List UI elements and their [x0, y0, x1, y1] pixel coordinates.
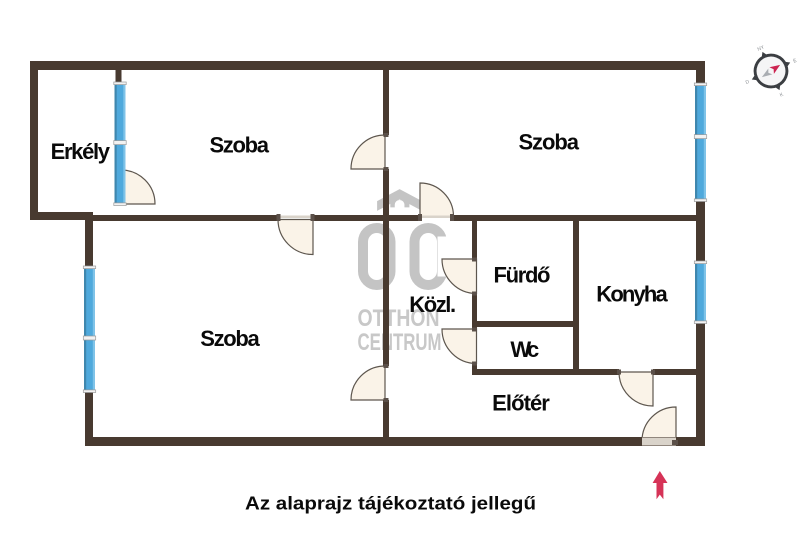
svg-text:Előtér: Előtér	[492, 391, 550, 416]
svg-text:Erkély: Erkély	[51, 139, 111, 164]
svg-text:Wc: Wc	[510, 337, 539, 362]
svg-text:Az alaprajz tájékoztató jelleg: Az alaprajz tájékoztató jellegű	[245, 492, 536, 513]
svg-text:Szoba: Szoba	[518, 130, 579, 155]
svg-text:Közl.: Közl.	[409, 292, 456, 317]
svg-text:Konyha: Konyha	[596, 282, 668, 307]
svg-text:CENTRUM: CENTRUM	[358, 329, 442, 356]
svg-text:Szoba: Szoba	[200, 326, 260, 351]
svg-text:Fürdő: Fürdő	[494, 263, 551, 288]
svg-text:Szoba: Szoba	[209, 133, 269, 158]
